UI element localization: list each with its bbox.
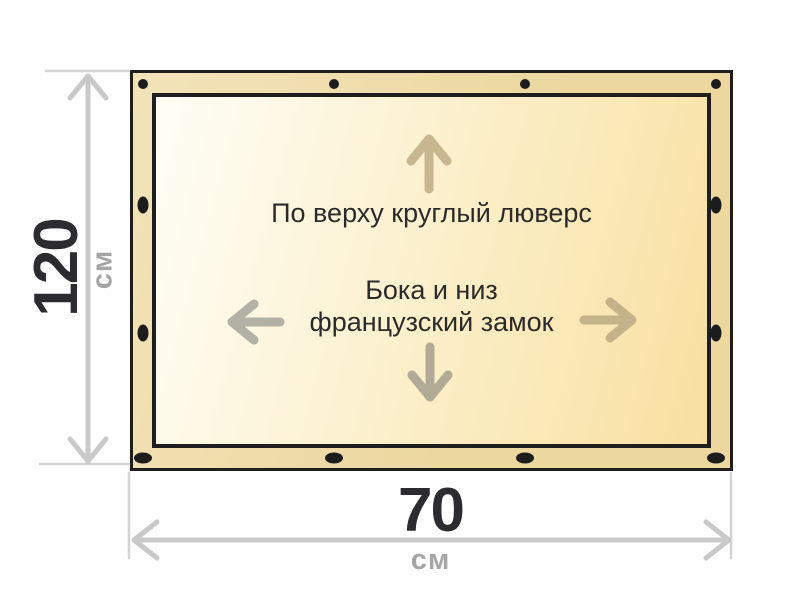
height-dimension-unit: см: [89, 210, 118, 330]
banner-middle-note-line2: французский замок: [130, 306, 733, 338]
arrowhead-icon: [70, 439, 106, 461]
banner-outline: [130, 70, 733, 471]
width-dimension-unit: см: [130, 546, 731, 575]
banner-middle-note-line1: Бока и низ: [130, 274, 733, 306]
banner-inner-panel: [152, 93, 711, 448]
width-dimension-value: 70: [130, 480, 731, 542]
banner-middle-note: Бока и низ французский замок: [130, 274, 733, 338]
arrowhead-icon: [70, 76, 106, 98]
height-dimension-value: 120: [26, 148, 88, 388]
banner-top-note: По верху круглый люверс: [130, 197, 733, 229]
banner-dimension-diagram: По верху круглый люверс Бока и низ франц…: [0, 0, 800, 600]
